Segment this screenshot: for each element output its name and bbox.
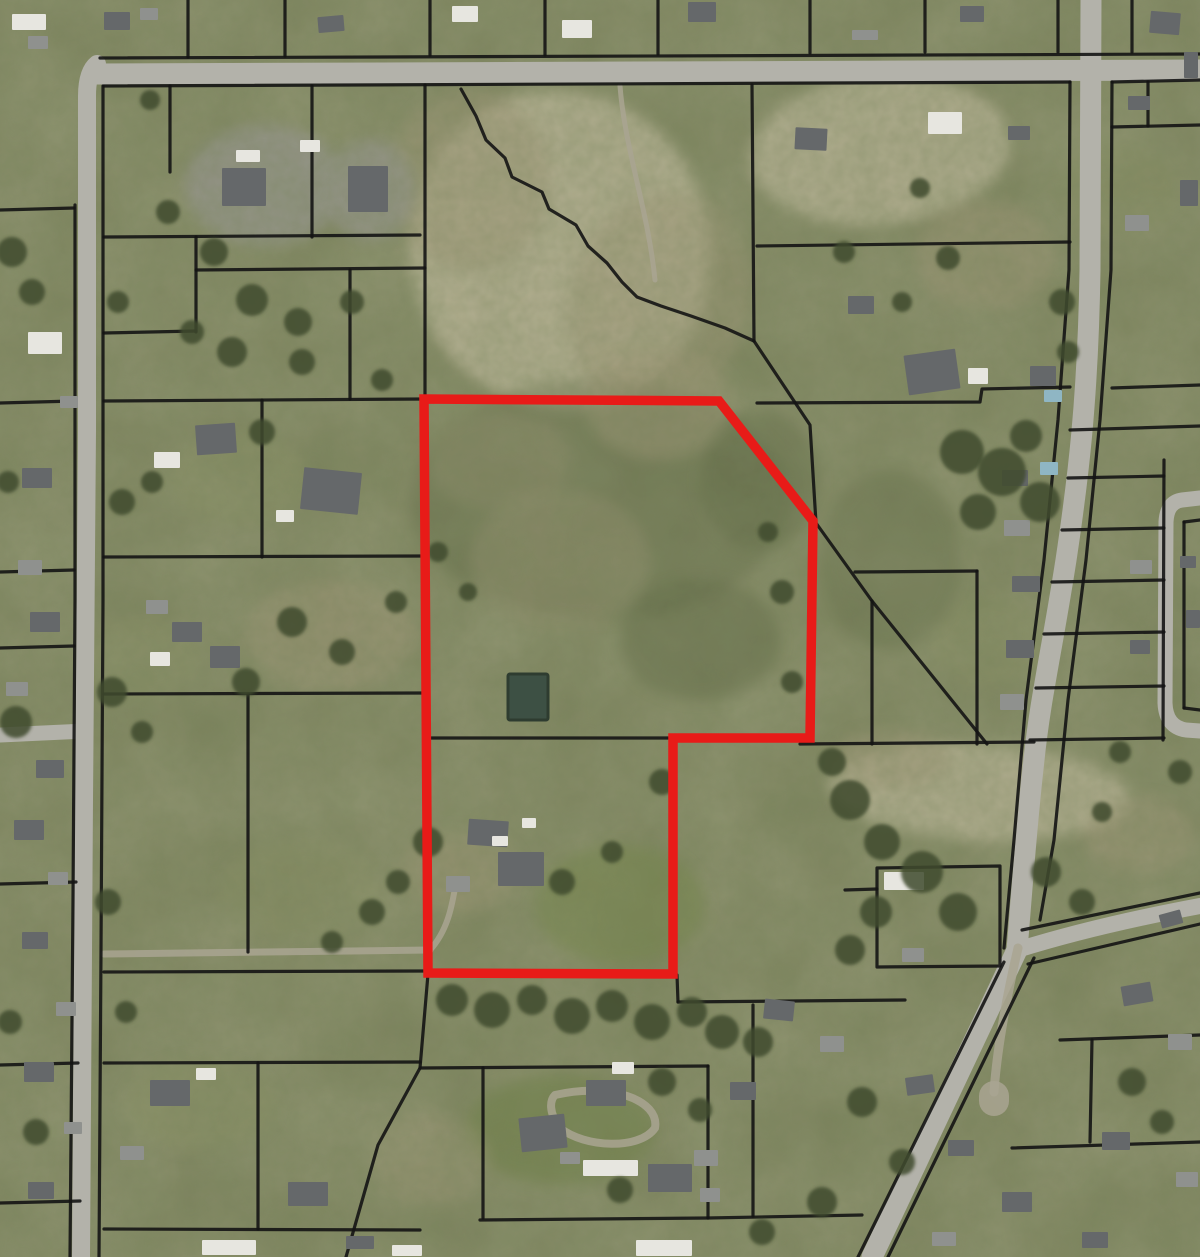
tree (236, 284, 268, 316)
tree (19, 279, 45, 305)
building (104, 12, 130, 30)
driveway-lane (104, 950, 430, 954)
parcel-boundary-line (0, 208, 74, 210)
building (300, 467, 362, 515)
building (522, 818, 536, 828)
building (583, 1160, 638, 1176)
parcel-boundary-line (104, 556, 425, 557)
building (586, 1080, 626, 1106)
building (928, 112, 962, 134)
parcel-boundary-line (104, 1062, 420, 1063)
building (22, 468, 52, 488)
tree (770, 580, 794, 604)
building (1184, 52, 1198, 78)
tree (428, 542, 448, 562)
building (902, 948, 924, 962)
parcel-boundary-line (855, 571, 977, 572)
tree (141, 471, 163, 493)
building (150, 1080, 190, 1106)
parcel-boundary-line (480, 1218, 708, 1220)
tree (1057, 341, 1079, 363)
tree (781, 671, 803, 693)
parcel-boundary-line (104, 235, 420, 237)
building (820, 1036, 844, 1052)
parcel-boundary-line (677, 975, 678, 1002)
building (636, 1240, 692, 1256)
building (852, 30, 878, 40)
building (1176, 1172, 1198, 1187)
parcel-boundary-line (1036, 686, 1164, 688)
building (848, 296, 874, 314)
tree (1031, 857, 1061, 887)
building (202, 1240, 256, 1255)
tree (109, 489, 135, 515)
parcel-boundary-line (104, 399, 425, 401)
parcel-boundary-line (1184, 708, 1200, 710)
tree (1020, 482, 1060, 522)
tree (818, 748, 846, 776)
parcel-boundary-line (104, 693, 425, 694)
tree (549, 869, 575, 895)
building (1000, 694, 1024, 710)
building (903, 349, 960, 396)
tree (217, 337, 247, 367)
building (1004, 520, 1030, 536)
building (24, 1062, 54, 1082)
building (612, 1062, 634, 1074)
building (222, 168, 266, 206)
tree (107, 291, 129, 313)
parcel-boundary-line (1068, 476, 1164, 478)
building (948, 1140, 974, 1156)
building (1180, 180, 1198, 206)
tree (1168, 760, 1192, 784)
tree (371, 369, 393, 391)
tree (386, 870, 410, 894)
building (14, 820, 44, 840)
building (154, 452, 180, 468)
parcel-boundary-line (1112, 80, 1200, 82)
building (763, 998, 795, 1021)
building (1006, 640, 1034, 658)
tree (892, 292, 912, 312)
parcel-boundary-line (800, 742, 1034, 744)
tree (1150, 1110, 1174, 1134)
building (1130, 560, 1152, 574)
building (1040, 462, 1058, 475)
tree (23, 1119, 49, 1145)
tree (634, 1004, 670, 1040)
building (1125, 215, 1149, 231)
building (348, 166, 388, 212)
building (36, 760, 64, 778)
tree (140, 90, 160, 110)
building (560, 1152, 580, 1164)
tree (180, 320, 204, 344)
building (6, 682, 28, 696)
building (140, 8, 158, 20)
building (1180, 556, 1196, 568)
tree (833, 241, 855, 263)
parcel-boundary-line (1044, 632, 1164, 634)
building (562, 20, 592, 38)
parcel-boundary-line (1184, 520, 1200, 522)
tree (474, 992, 510, 1028)
tree (95, 889, 121, 915)
tree (807, 1187, 837, 1217)
building (12, 14, 46, 30)
tree (1109, 741, 1131, 763)
building (648, 1164, 692, 1192)
tree (835, 935, 865, 965)
tree (758, 522, 778, 542)
building (498, 852, 544, 886)
tree (131, 721, 153, 743)
tree (830, 780, 870, 820)
tree (688, 1098, 712, 1122)
building (48, 872, 68, 885)
building (932, 1232, 956, 1246)
tree (901, 851, 943, 893)
parcel-boundary-line (104, 971, 428, 972)
building (1130, 640, 1150, 654)
parcel-boundary-line (1090, 1040, 1092, 1142)
tree (978, 448, 1026, 496)
tree (459, 583, 477, 601)
building (694, 1150, 718, 1166)
tree (277, 607, 307, 637)
building (452, 6, 478, 22)
tree (677, 997, 707, 1027)
building (210, 646, 240, 668)
building (1128, 96, 1150, 110)
tree (889, 1149, 915, 1175)
building (1149, 11, 1181, 36)
tree (156, 200, 180, 224)
building (346, 1236, 374, 1249)
tree (1092, 802, 1112, 822)
building (1030, 366, 1056, 386)
tree (940, 430, 984, 474)
tree (97, 677, 127, 707)
pond (508, 674, 548, 720)
building (288, 1182, 328, 1206)
tree (960, 494, 996, 530)
building (236, 150, 260, 162)
building (1186, 610, 1200, 628)
building (317, 15, 344, 33)
building (172, 622, 202, 642)
parcel-boundary-line (752, 85, 754, 341)
building (28, 36, 48, 49)
building (392, 1245, 422, 1256)
building (1102, 1132, 1130, 1150)
building (968, 368, 988, 384)
building (492, 836, 508, 846)
tree (340, 290, 364, 314)
building (30, 612, 60, 632)
tree (359, 899, 385, 925)
building (700, 1188, 720, 1202)
tree (705, 1015, 739, 1049)
parcel-boundary-line (196, 268, 425, 270)
tree (284, 308, 312, 336)
building (146, 600, 168, 614)
building (64, 1122, 82, 1134)
tree (1069, 889, 1095, 915)
tree (936, 246, 960, 270)
building (1008, 126, 1030, 140)
building (1168, 1034, 1192, 1050)
building (28, 332, 62, 354)
parcel-boundary-line (0, 1201, 80, 1203)
building (195, 423, 237, 456)
tree (289, 349, 315, 375)
tree (385, 591, 407, 613)
parcel-boundary-line (1163, 460, 1164, 740)
tree (596, 990, 628, 1022)
building (688, 2, 716, 22)
aerial-parcel-map (0, 0, 1200, 1257)
building (28, 1182, 54, 1199)
tree (939, 893, 977, 931)
tree (249, 419, 275, 445)
building (518, 1114, 567, 1153)
parcel-boundary-line (1062, 528, 1164, 530)
parcel-boundary-line (1112, 125, 1200, 127)
building (1082, 1232, 1108, 1248)
parcel-boundary-line (0, 646, 74, 648)
building (60, 396, 78, 408)
building (300, 140, 320, 152)
tree (860, 896, 892, 928)
tree (0, 706, 32, 738)
tree (321, 931, 343, 953)
tree (232, 668, 260, 696)
tree (554, 998, 590, 1034)
building (1012, 576, 1040, 592)
tree (743, 1027, 773, 1057)
building (120, 1146, 144, 1160)
building (150, 652, 170, 666)
parcel-boundary-line (1030, 738, 1164, 740)
tree (115, 1001, 137, 1023)
tree (517, 985, 547, 1015)
parcel-boundary-line (1052, 580, 1164, 582)
tree (436, 984, 468, 1016)
building (1002, 1192, 1032, 1212)
building (18, 560, 42, 575)
building (22, 932, 48, 949)
map-canvas[interactable] (0, 0, 1200, 1257)
road-top-road (96, 70, 1200, 74)
tree (864, 824, 900, 860)
tree (648, 1068, 676, 1096)
building (1044, 390, 1062, 402)
tree (601, 841, 623, 863)
tree (607, 1177, 633, 1203)
tree (910, 178, 930, 198)
building (56, 1002, 76, 1016)
parcel-boundary-line (420, 1066, 708, 1068)
tree (1118, 1068, 1146, 1096)
tree (1049, 289, 1075, 315)
tree (329, 639, 355, 665)
building (446, 876, 470, 892)
building (794, 127, 827, 151)
tree (1010, 420, 1042, 452)
tree (200, 238, 228, 266)
parcel-boundary-line (845, 889, 877, 890)
tree (749, 1219, 775, 1245)
building (960, 6, 984, 22)
building (730, 1082, 756, 1100)
tree (847, 1087, 877, 1117)
building (196, 1068, 216, 1080)
building (276, 510, 294, 522)
parcel-boundary-line (104, 1229, 420, 1230)
